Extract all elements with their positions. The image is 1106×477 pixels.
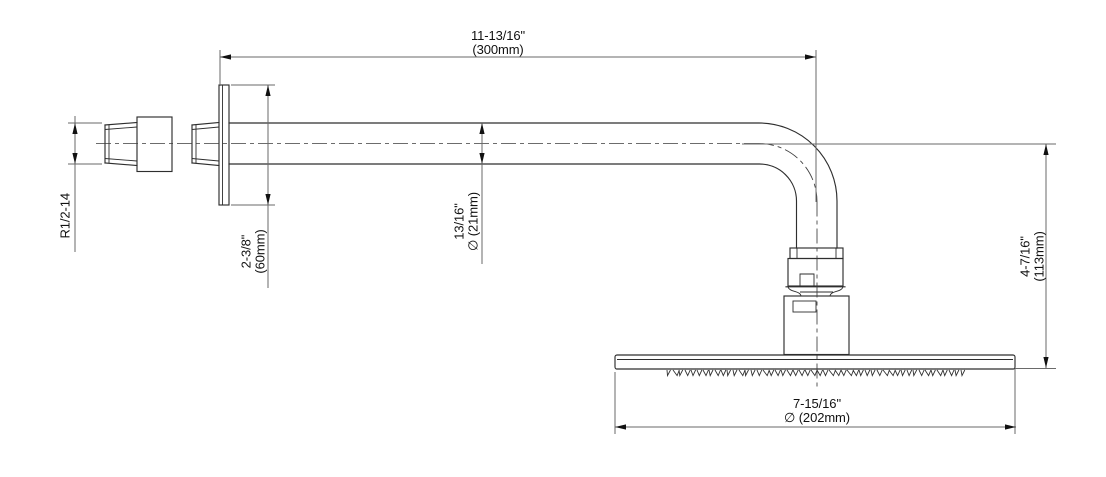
drop-mm: (113mm) bbox=[1032, 217, 1046, 297]
dim-pipe-diameter bbox=[479, 123, 484, 264]
coupling-nut bbox=[137, 117, 172, 172]
dim-thread bbox=[68, 116, 102, 252]
thread-spec: R1/2-14 bbox=[58, 176, 72, 256]
ball-joint bbox=[786, 287, 845, 296]
line-art bbox=[0, 0, 1106, 477]
flange-inches: 2-3/8" bbox=[240, 212, 254, 292]
head-inches: 7-15/16" bbox=[747, 397, 887, 411]
arm-length-mm: (300mm) bbox=[428, 43, 568, 57]
pipe-inches: 13/16" bbox=[453, 182, 467, 262]
head-stem bbox=[784, 296, 849, 355]
arm-thread bbox=[192, 123, 219, 166]
drawing-canvas: 11-13/16" (300mm) R1/2-14 2-3/8" (60mm) … bbox=[0, 0, 1106, 477]
nozzle-band bbox=[667, 370, 965, 376]
shower-arm-pipe bbox=[229, 123, 837, 248]
drop-inches: 4-7/16" bbox=[1019, 217, 1033, 297]
connector-nut bbox=[790, 248, 843, 259]
drop-height-label: 4-7/16" (113mm) bbox=[1019, 217, 1046, 297]
head-mm: ∅ (202mm) bbox=[747, 411, 887, 425]
head-diameter-label: 7-15/16" ∅ (202mm) bbox=[747, 397, 887, 424]
wall-flange bbox=[219, 85, 229, 205]
flange-height-label: 2-3/8" (60mm) bbox=[240, 212, 267, 292]
pipe-diameter-label: 13/16" ∅ (21mm) bbox=[453, 182, 480, 262]
arm-length-inches: 11-13/16" bbox=[428, 29, 568, 43]
arm-length-label: 11-13/16" (300mm) bbox=[428, 29, 568, 56]
dim-drop-height bbox=[742, 144, 1056, 369]
wall-nipple bbox=[105, 123, 137, 166]
dim-arm-length bbox=[220, 50, 816, 202]
shower-head bbox=[615, 355, 1015, 376]
pipe-mm: ∅ (21mm) bbox=[466, 182, 480, 262]
connector-body bbox=[788, 259, 843, 287]
flange-mm: (60mm) bbox=[253, 212, 267, 292]
thread-label: R1/2-14 bbox=[58, 176, 72, 256]
